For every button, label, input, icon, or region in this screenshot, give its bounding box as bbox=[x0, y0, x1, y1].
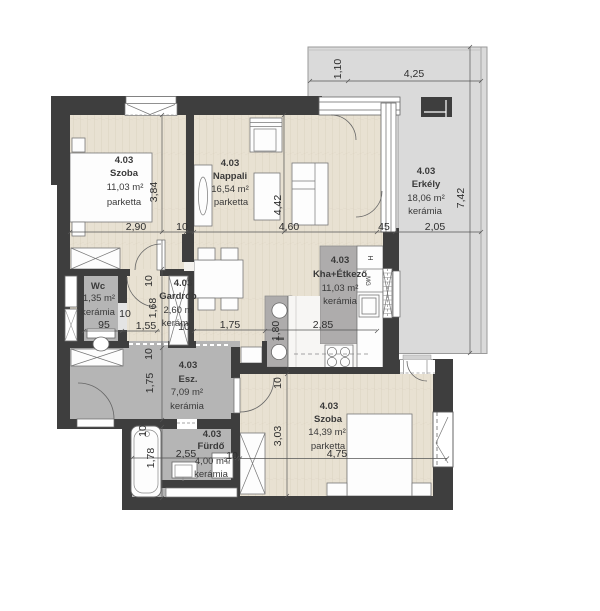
svg-text:16,54 m²: 16,54 m² bbox=[211, 184, 249, 195]
svg-text:95: 95 bbox=[98, 319, 110, 331]
svg-text:4.03: 4.03 bbox=[320, 401, 339, 412]
svg-text:4.03: 4.03 bbox=[417, 166, 436, 177]
svg-text:Fürdő: Fürdő bbox=[198, 441, 225, 452]
svg-text:7,42: 7,42 bbox=[455, 188, 467, 209]
svg-text:1,75: 1,75 bbox=[220, 319, 241, 331]
svg-text:1,68: 1,68 bbox=[147, 298, 159, 319]
svg-text:Gardrób: Gardrób bbox=[159, 291, 197, 302]
svg-text:Esz.: Esz. bbox=[178, 374, 197, 385]
svg-text:4,25: 4,25 bbox=[404, 68, 425, 80]
svg-text:3,03: 3,03 bbox=[272, 426, 284, 447]
svg-text:45: 45 bbox=[378, 221, 390, 233]
svg-text:H: H bbox=[366, 255, 373, 260]
svg-text:10: 10 bbox=[137, 425, 149, 437]
svg-text:2,60 m: 2,60 m bbox=[163, 305, 192, 316]
svg-text:10: 10 bbox=[226, 450, 238, 462]
svg-text:7,09 m²: 7,09 m² bbox=[171, 387, 203, 398]
svg-text:4.03: 4.03 bbox=[331, 255, 350, 266]
svg-text:1,78: 1,78 bbox=[145, 448, 157, 469]
svg-text:3,84: 3,84 bbox=[148, 182, 160, 203]
svg-text:Szoba: Szoba bbox=[110, 168, 139, 179]
svg-text:Szoba: Szoba bbox=[314, 414, 343, 425]
svg-text:4,42: 4,42 bbox=[272, 195, 284, 216]
svg-text:14,39 m²: 14,39 m² bbox=[308, 427, 346, 438]
svg-text:Erkély: Erkély bbox=[412, 179, 441, 190]
svg-text:1,55: 1,55 bbox=[136, 320, 157, 332]
svg-text:parketta: parketta bbox=[214, 197, 249, 208]
svg-text:10: 10 bbox=[119, 308, 131, 320]
svg-text:4.03: 4.03 bbox=[221, 158, 240, 169]
svg-text:2,05: 2,05 bbox=[425, 221, 446, 233]
svg-text:1,80: 1,80 bbox=[270, 321, 282, 342]
svg-text:11,03 m²: 11,03 m² bbox=[107, 182, 144, 193]
svg-text:10: 10 bbox=[143, 275, 155, 287]
svg-text:10: 10 bbox=[143, 348, 155, 360]
svg-text:4,00 m²: 4,00 m² bbox=[195, 456, 227, 467]
svg-text:10: 10 bbox=[272, 377, 284, 389]
svg-text:Nappali: Nappali bbox=[213, 171, 247, 182]
svg-text:Wc: Wc bbox=[91, 281, 105, 292]
svg-text:2,85: 2,85 bbox=[313, 319, 334, 331]
svg-text:kerámia: kerámia bbox=[81, 307, 116, 318]
svg-text:kerámia: kerámia bbox=[170, 401, 205, 412]
svg-text:4.03: 4.03 bbox=[179, 360, 198, 371]
svg-text:4,60: 4,60 bbox=[279, 221, 300, 233]
svg-text:1,10: 1,10 bbox=[332, 59, 344, 80]
svg-text:kerámia: kerámia bbox=[408, 206, 443, 217]
svg-text:parketta: parketta bbox=[107, 197, 142, 208]
svg-text:2,55: 2,55 bbox=[176, 448, 197, 460]
svg-text:4.03: 4.03 bbox=[203, 429, 222, 440]
svg-text:4.03: 4.03 bbox=[115, 155, 134, 166]
svg-text:1,75: 1,75 bbox=[144, 373, 156, 394]
svg-text:18,06 m²: 18,06 m² bbox=[407, 193, 445, 204]
svg-text:parketta: parketta bbox=[311, 441, 346, 452]
svg-text:Kha+Étkező: Kha+Étkező bbox=[313, 269, 367, 280]
svg-text:kerámi: kerámi bbox=[162, 318, 191, 329]
svg-text:4.03: 4.03 bbox=[174, 278, 193, 289]
svg-text:10: 10 bbox=[176, 221, 188, 233]
svg-text:1,35 m²: 1,35 m² bbox=[83, 293, 115, 304]
svg-text:kerámia: kerámia bbox=[323, 296, 358, 307]
svg-text:kerámia: kerámia bbox=[194, 469, 229, 480]
svg-text:11,03 m²: 11,03 m² bbox=[322, 283, 359, 294]
svg-text:2,90: 2,90 bbox=[126, 221, 147, 233]
